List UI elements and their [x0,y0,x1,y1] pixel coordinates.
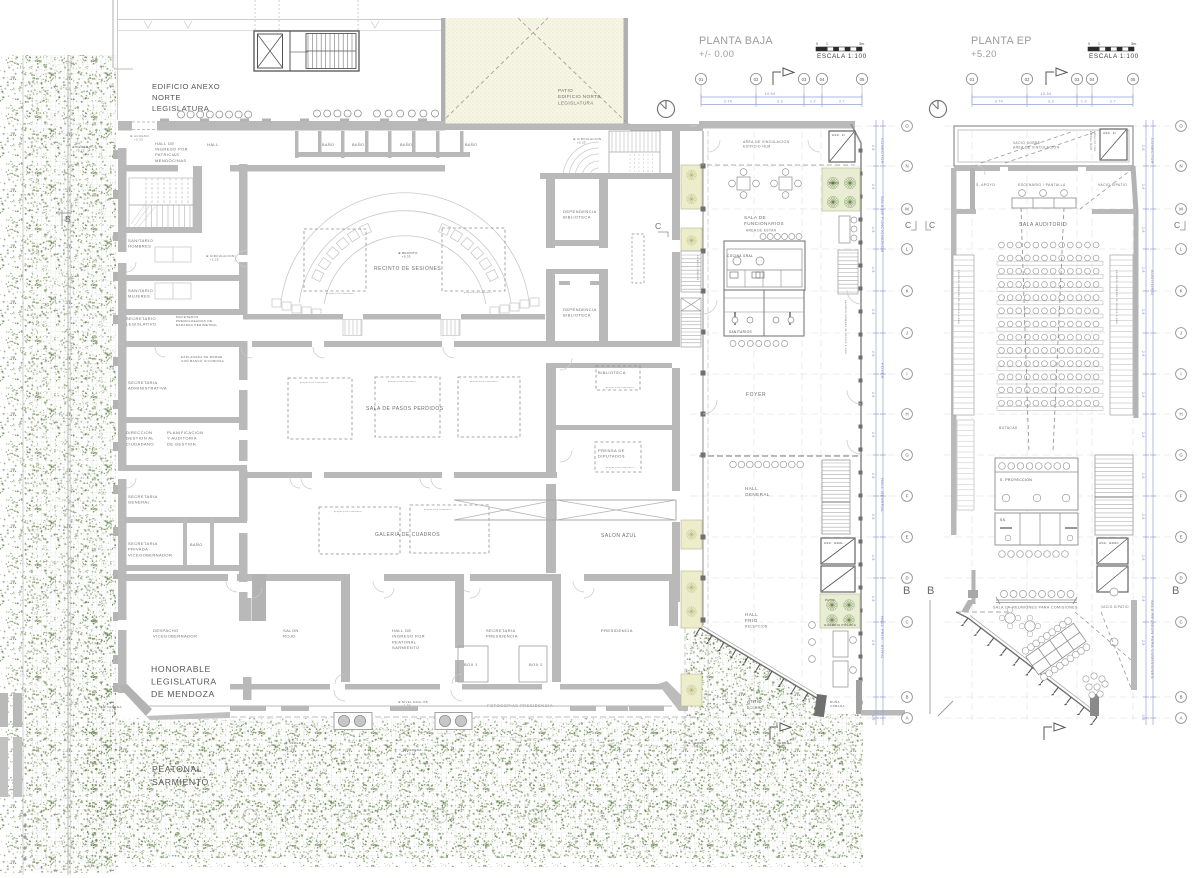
svg-text:SALON AZUL: SALON AZUL [601,533,637,539]
svg-text:+0.15: +0.15 [289,745,298,749]
svg-text:2.7: 2.7 [1110,100,1116,104]
svg-text:AREA DE VINCULACION: AREA DE VINCULACION [1013,146,1060,150]
svg-text:A: A [1180,716,1183,721]
svg-text:3m.: 3m. [859,42,865,46]
svg-text:+0.15: +0.15 [692,745,701,749]
svg-text:HALL: HALL [745,486,758,491]
svg-text:1: 1 [1098,42,1100,46]
svg-text:01: 01 [970,77,975,82]
svg-text:S. PROYECCION: S. PROYECCION [1000,478,1032,482]
svg-text:C: C [1174,220,1181,230]
svg-text:proyección luminaria: proyección luminaria [464,291,492,294]
svg-text:B: B [1172,585,1180,597]
svg-text:HALL FRIO - ATRIO: HALL FRIO - ATRIO [880,616,885,659]
svg-text:2.8: 2.8 [1141,145,1145,151]
svg-text:PRESIDENCIA: PRESIDENCIA [601,628,633,633]
svg-text:PLANTA EP: PLANTA EP [971,35,1032,47]
svg-text:BOX 2: BOX 2 [529,662,543,667]
svg-text:GUARDIA POLICIA: GUARDIA POLICIA [824,623,856,627]
svg-text:04: 04 [820,77,825,82]
svg-text:HALL DE: HALL DE [155,141,175,146]
svg-text:B: B [65,214,71,224]
svg-text:EDIFICIO NORTE: EDIFICIO NORTE [558,94,601,99]
svg-text:2.7: 2.7 [839,100,845,104]
svg-text:AREA DE ESTAR: AREA DE ESTAR [746,229,777,233]
svg-text:SECRETARIA: SECRETARIA [128,494,158,499]
svg-text:2.8: 2.8 [871,555,875,561]
svg-text:VACIO S/PATIO: VACIO S/PATIO [1101,605,1129,609]
svg-text:FOYER: FOYER [880,363,885,379]
svg-text:2.8: 2.8 [871,267,875,273]
svg-text:MUJERES: MUJERES [128,294,150,299]
svg-text:2.8: 2.8 [1141,432,1145,438]
svg-text:03: 03 [1075,77,1080,82]
svg-text:C: C [905,220,912,230]
svg-text:+0.15: +0.15 [407,752,416,756]
svg-text:proyección luminaria: proyección luminaria [470,380,498,383]
svg-text:2.8: 2.8 [871,184,875,190]
svg-text:+1.25: +1.25 [210,257,219,261]
svg-text:SARMIENTO: SARMIENTO [152,777,209,787]
svg-text:1.5: 1.5 [871,715,875,721]
svg-text:DIPUTADOS: DIPUTADOS [598,454,625,459]
svg-text:E: E [1180,535,1183,540]
svg-text:2.8: 2.8 [1141,473,1145,479]
svg-text:2.8: 2.8 [1141,640,1145,646]
svg-text:NORTE: NORTE [152,93,181,102]
svg-text:H: H [905,412,908,417]
svg-text:proyección luminaria: proyección luminaria [606,386,634,389]
svg-text:+/- 0.00: +/- 0.00 [699,49,734,60]
svg-text:⊕ VEREDA: ⊕ VEREDA [72,145,91,149]
svg-text:escalera rampada: escalera rampada [696,255,699,281]
svg-text:2.8: 2.8 [871,227,875,233]
svg-text:escalera rampada de acceso: escalera rampada de acceso a sala [1115,270,1119,324]
svg-text:RECEPCION: RECEPCION [745,625,768,629]
svg-text:SALA DE PASOS PERDIDOS: SALA DE PASOS PERDIDOS [366,406,444,412]
svg-text:PATRICIAS: PATRICIAS [155,152,179,157]
svg-text:K: K [906,289,909,294]
svg-text:10.94: 10.94 [1041,92,1052,96]
svg-text:BIBLIOTECA: BIBLIOTECA [563,215,591,220]
svg-text:J: J [906,331,908,336]
svg-text:2.8: 2.8 [1141,184,1145,190]
svg-text:ACCESO: ACCESO [747,706,763,710]
svg-text:⊕ VEREDA: ⊕ VEREDA [285,741,304,745]
svg-text:1.5: 1.5 [1141,715,1145,721]
svg-text:+0.33: +0.33 [402,254,411,258]
svg-text:+0.33: +0.33 [577,140,586,144]
svg-text:PRIVADA: PRIVADA [128,547,148,552]
svg-text:DE GESTION: DE GESTION [167,441,196,446]
svg-text:2.8: 2.8 [871,596,875,602]
svg-text:0: 0 [1088,42,1090,46]
svg-text:COCINA GRAL: COCINA GRAL [727,254,753,258]
svg-text:Y AUDITORIA: Y AUDITORIA [167,436,197,441]
svg-text:05: 05 [860,77,865,82]
svg-text:FRIO: FRIO [745,618,758,623]
svg-text:B: B [927,585,935,597]
svg-text:SALA AUDITORIO: SALA AUDITORIO [1019,222,1067,228]
svg-text:CON BANCO S/CORNISA: CON BANCO S/CORNISA [181,359,224,363]
svg-text:BARANDA PERIMETRAL: BARANDA PERIMETRAL [176,323,218,327]
svg-text:SARMIENTO: SARMIENTO [392,645,420,650]
svg-text:VICEGOBERNADOR: VICEGOBERNADOR [153,634,197,639]
svg-text:B: B [906,695,909,700]
svg-text:ATRIO: ATRIO [747,699,762,704]
svg-text:CIUDADANO: CIUDADANO [126,441,154,446]
svg-text:VICEGOBERNADOR: VICEGOBERNADOR [128,552,172,557]
svg-text:C: C [929,220,936,230]
svg-text:D: D [905,576,908,581]
svg-text:FOYER: FOYER [746,392,766,398]
svg-text:A: A [906,716,909,721]
svg-text:GALERIA DE CUADROS: GALERIA DE CUADROS [375,532,440,538]
svg-text:FUNCIONARIOS: FUNCIONARIOS [744,221,784,226]
svg-text:1: 1 [826,42,828,46]
svg-text:0: 0 [816,42,818,46]
svg-text:B: B [1180,695,1183,700]
svg-text:2.8: 2.8 [1141,555,1145,561]
svg-text:escalera rampada de acceso: escalera rampada de acceso a sala [957,270,961,324]
svg-text:PATIO: PATIO [825,598,835,602]
svg-text:H: H [1179,412,1182,417]
svg-text:BAÑO: BAÑO [352,142,364,147]
svg-text:proyección luminaria: proyección luminaria [424,508,452,511]
svg-text:E: E [906,535,909,540]
svg-text:S. APOYO: S. APOYO [976,183,995,187]
svg-text:PLANIFICACION: PLANIFICACION [167,430,203,435]
svg-text:+5.20: +5.20 [971,49,997,60]
svg-text:10.94: 10.94 [765,92,776,96]
svg-text:EDIFICIO HLM: EDIFICIO HLM [743,145,771,149]
svg-text:SS.: SS. [1000,518,1007,522]
svg-text:2.8: 2.8 [871,514,875,520]
svg-text:HOMBRES: HOMBRES [128,244,151,249]
svg-text:1.2: 1.2 [1081,100,1087,104]
svg-text:SANITARIOS: SANITARIOS [729,330,752,334]
svg-text:BUTACAS: BUTACAS [999,426,1018,430]
svg-text:02: 02 [1025,77,1030,82]
svg-text:SALA DE: SALA DE [744,215,766,220]
svg-text:LEGISLATIVO: LEGISLATIVO [126,322,156,327]
svg-text:proyección luminaria: proyección luminaria [326,292,354,295]
svg-text:2.8: 2.8 [1141,596,1145,602]
svg-text:SANITARIO: SANITARIO [128,238,153,243]
svg-text:SANITARIO: SANITARIO [128,288,153,293]
svg-text:⊕ CIRCULACION: ⊕ CIRCULACION [573,137,601,141]
svg-text:1.2: 1.2 [810,100,816,104]
svg-text:ESCALA 1:100: ESCALA 1:100 [1089,53,1139,60]
svg-text:+0.33: +0.33 [134,137,143,141]
svg-text:proyección luminaria: proyección luminaria [388,380,416,383]
svg-text:2.8: 2.8 [871,309,875,315]
svg-text:I: I [906,372,907,377]
svg-text:F: F [906,494,909,499]
svg-text:SECRETARIO: SECRETARIO [126,316,156,321]
svg-text:2.8: 2.8 [871,640,875,646]
svg-text:BIBLIOTECA: BIBLIOTECA [598,370,626,375]
svg-text:ASC. GRAC: ASC. GRAC [1099,541,1120,545]
svg-text:LEGISLATURA: LEGISLATURA [558,100,594,105]
svg-text:DEPENDENCIA: DEPENDENCIA [563,307,597,312]
svg-text:⊕ CIRCULACION: ⊕ CIRCULACION [206,254,234,258]
svg-text:ROJO: ROJO [283,634,296,639]
svg-text:BAÑO: BAÑO [322,142,334,147]
svg-text:⊕ VEREDA: ⊕ VEREDA [103,705,122,709]
svg-text:SALA DE REUNIONES PARA COM: SALA DE REUNIONES PARA COMISIONES [993,606,1078,610]
svg-text:CONECTOR: CONECTOR [1150,138,1155,164]
svg-text:DIRECCION: DIRECCION [126,430,152,435]
svg-text:DEPENDENCIA: DEPENDENCIA [563,209,597,214]
svg-text:HALL: HALL [745,612,758,617]
svg-text:PRESIDENCIA: PRESIDENCIA [486,634,518,639]
svg-text:escalera rampada de acceso: escalera rampada de acceso a sala [844,300,848,354]
svg-text:ADMINISTRATIVA: ADMINISTRATIVA [128,386,167,391]
svg-text:C: C [655,221,662,231]
svg-text:3.74: 3.74 [995,100,1003,104]
svg-text:SALA REUNION PARA COMISIONES: SALA REUNION PARA COMISIONES [1150,600,1155,679]
svg-text:2.8: 2.8 [871,351,875,357]
svg-text:2.8: 2.8 [871,145,875,151]
svg-text:N: N [1179,164,1182,169]
svg-text:proyección luminaria: proyección luminaria [300,381,328,384]
svg-text:PEATONAL: PEATONAL [392,639,417,644]
svg-text:LEGISLATURA: LEGISLATURA [151,676,217,686]
svg-text:GESTION AL: GESTION AL [126,436,154,441]
svg-text:3.3: 3.3 [777,100,783,104]
svg-text:DE MENDOZA: DE MENDOZA [151,689,215,699]
svg-text:HALL: HALL [207,142,219,147]
svg-text:2.8: 2.8 [871,392,875,398]
svg-text:HALL GENERAL: HALL GENERAL [880,478,885,513]
svg-text:proyección luminaria: proyección luminaria [606,466,634,469]
svg-text:05: 05 [1131,77,1136,82]
svg-text:F: F [1180,494,1183,499]
svg-text:VACIO S/PATIO: VACIO S/PATIO [1098,183,1127,187]
svg-text:2.8: 2.8 [1141,309,1145,315]
svg-text:PLANTA BAJA: PLANTA BAJA [699,35,773,47]
svg-text:ASC. F/: ASC. F/ [832,133,845,137]
svg-text:04: 04 [1090,77,1095,82]
svg-text:03: 03 [802,77,807,82]
svg-text:MENDOCINAS: MENDOCINAS [155,158,186,163]
svg-text:2.8: 2.8 [1141,351,1145,357]
svg-text:2.8: 2.8 [871,473,875,479]
svg-text:proyección luminaria: proyección luminaria [334,510,362,513]
svg-text:AREA DE VINCULACION: AREA DE VINCULACION [743,140,790,144]
svg-text:URBANA: URBANA [830,704,845,708]
svg-text:GENERAL: GENERAL [128,500,150,505]
svg-text:N: N [905,164,908,169]
svg-text:ASC. F/: ASC. F/ [1103,131,1116,135]
svg-text:HONORABLE: HONORABLE [151,664,211,674]
svg-text:AUDITORIO: AUDITORIO [1150,270,1155,296]
svg-text:PATIO: PATIO [558,88,573,93]
svg-text:BAÑO: BAÑO [465,142,477,147]
svg-text:conector vinc.: conector vinc. [1093,131,1097,153]
svg-text:SECRETARIA: SECRETARIA [486,628,516,633]
svg-text:SALA DE FUNCIONARIOS: SALA DE FUNCIONARIOS [880,196,885,252]
svg-text:EDIFICIO ANEXO: EDIFICIO ANEXO [152,82,220,91]
svg-text:⊕ VEREDA: ⊕ VEREDA [688,741,707,745]
svg-text:ESCENARIO / PANTALLA: ESCENARIO / PANTALLA [1018,183,1066,187]
svg-text:GENERAL: GENERAL [745,492,770,497]
svg-text:⊕ NIVEL GRAL PB: ⊕ NIVEL GRAL PB [398,700,428,704]
svg-text:BIBLIOTECA: BIBLIOTECA [563,313,591,318]
svg-text:⊕ VEREDA: ⊕ VEREDA [403,748,422,752]
svg-text:2.8: 2.8 [1141,227,1145,233]
svg-text:PRENSA DE: PRENSA DE [598,448,625,453]
svg-text:CONECTOR: CONECTOR [880,138,885,164]
svg-text:⊕ RECINTO: ⊕ RECINTO [398,251,418,255]
svg-text:BAÑO: BAÑO [190,542,203,547]
svg-text:+0.15: +0.15 [777,745,786,749]
svg-text:INGRESO POR: INGRESO POR [392,634,425,639]
svg-text:FOTOCOPIAS PRESIDENCIA: FOTOCOPIAS PRESIDENCIA [487,703,553,708]
svg-text:3.74: 3.74 [724,100,732,104]
svg-text:02: 02 [754,77,759,82]
svg-text:SALON: SALON [283,628,299,633]
svg-text:2.8: 2.8 [1141,267,1145,273]
svg-text:3m.: 3m. [1131,42,1137,46]
svg-text:I: I [1180,372,1181,377]
svg-text:BAÑO: BAÑO [400,142,412,147]
svg-text:⊕ VEREDA: ⊕ VEREDA [773,741,792,745]
svg-text:PATIO: PATIO [829,181,839,185]
svg-text:J: J [1180,331,1182,336]
svg-text:BOX 1: BOX 1 [464,662,478,667]
svg-text:2.8: 2.8 [1141,514,1145,520]
svg-text:B: B [903,585,911,597]
svg-text:C: C [905,620,908,625]
svg-text:ASC. GRAL: ASC. GRAL [824,541,844,545]
svg-text:INGRESO POR: INGRESO POR [155,147,188,152]
svg-text:RECINTO DE SESIONES: RECINTO DE SESIONES [374,266,441,272]
svg-text:PEATONAL: PEATONAL [152,764,202,774]
svg-text:+0.15: +0.15 [107,709,116,713]
svg-text:+0.15: +0.15 [76,149,85,153]
svg-text:D: D [1179,576,1182,581]
svg-text:SECRETARIA: SECRETARIA [128,541,158,546]
svg-text:DESPACHO: DESPACHO [153,628,179,633]
svg-text:K: K [1180,289,1183,294]
svg-text:HALL DE: HALL DE [392,628,412,633]
svg-text:2.8: 2.8 [871,432,875,438]
svg-text:M: M [1179,207,1183,212]
svg-text:01: 01 [699,77,704,82]
svg-text:ESCALA 1:100: ESCALA 1:100 [817,53,867,60]
svg-text:edificio HLM: edificio HLM [1089,131,1093,150]
svg-text:SECRETARIA: SECRETARIA [128,380,158,385]
svg-text:VACIO SOBRE: VACIO SOBRE [1013,141,1041,145]
svg-text:3.3: 3.3 [1048,100,1054,104]
svg-text:2.8: 2.8 [1141,392,1145,398]
svg-text:C: C [1179,620,1182,625]
svg-text:M: M [905,207,909,212]
